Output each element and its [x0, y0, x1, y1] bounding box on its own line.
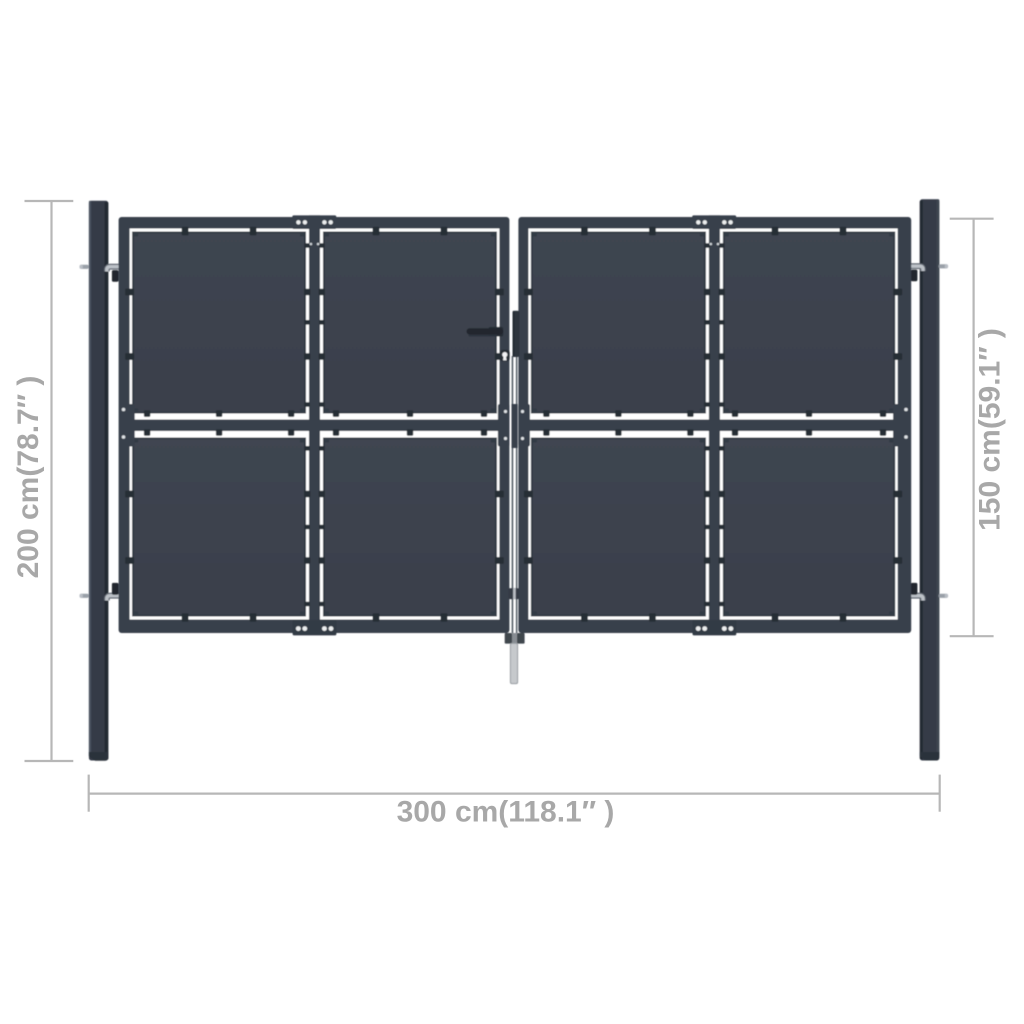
svg-text:150 cm(59.1″ ): 150 cm(59.1″ ) [974, 328, 1007, 531]
svg-text:200 cm(78.7″ ): 200 cm(78.7″ ) [12, 376, 45, 579]
svg-text:300 cm(118.1″ ): 300 cm(118.1″ ) [397, 796, 615, 829]
